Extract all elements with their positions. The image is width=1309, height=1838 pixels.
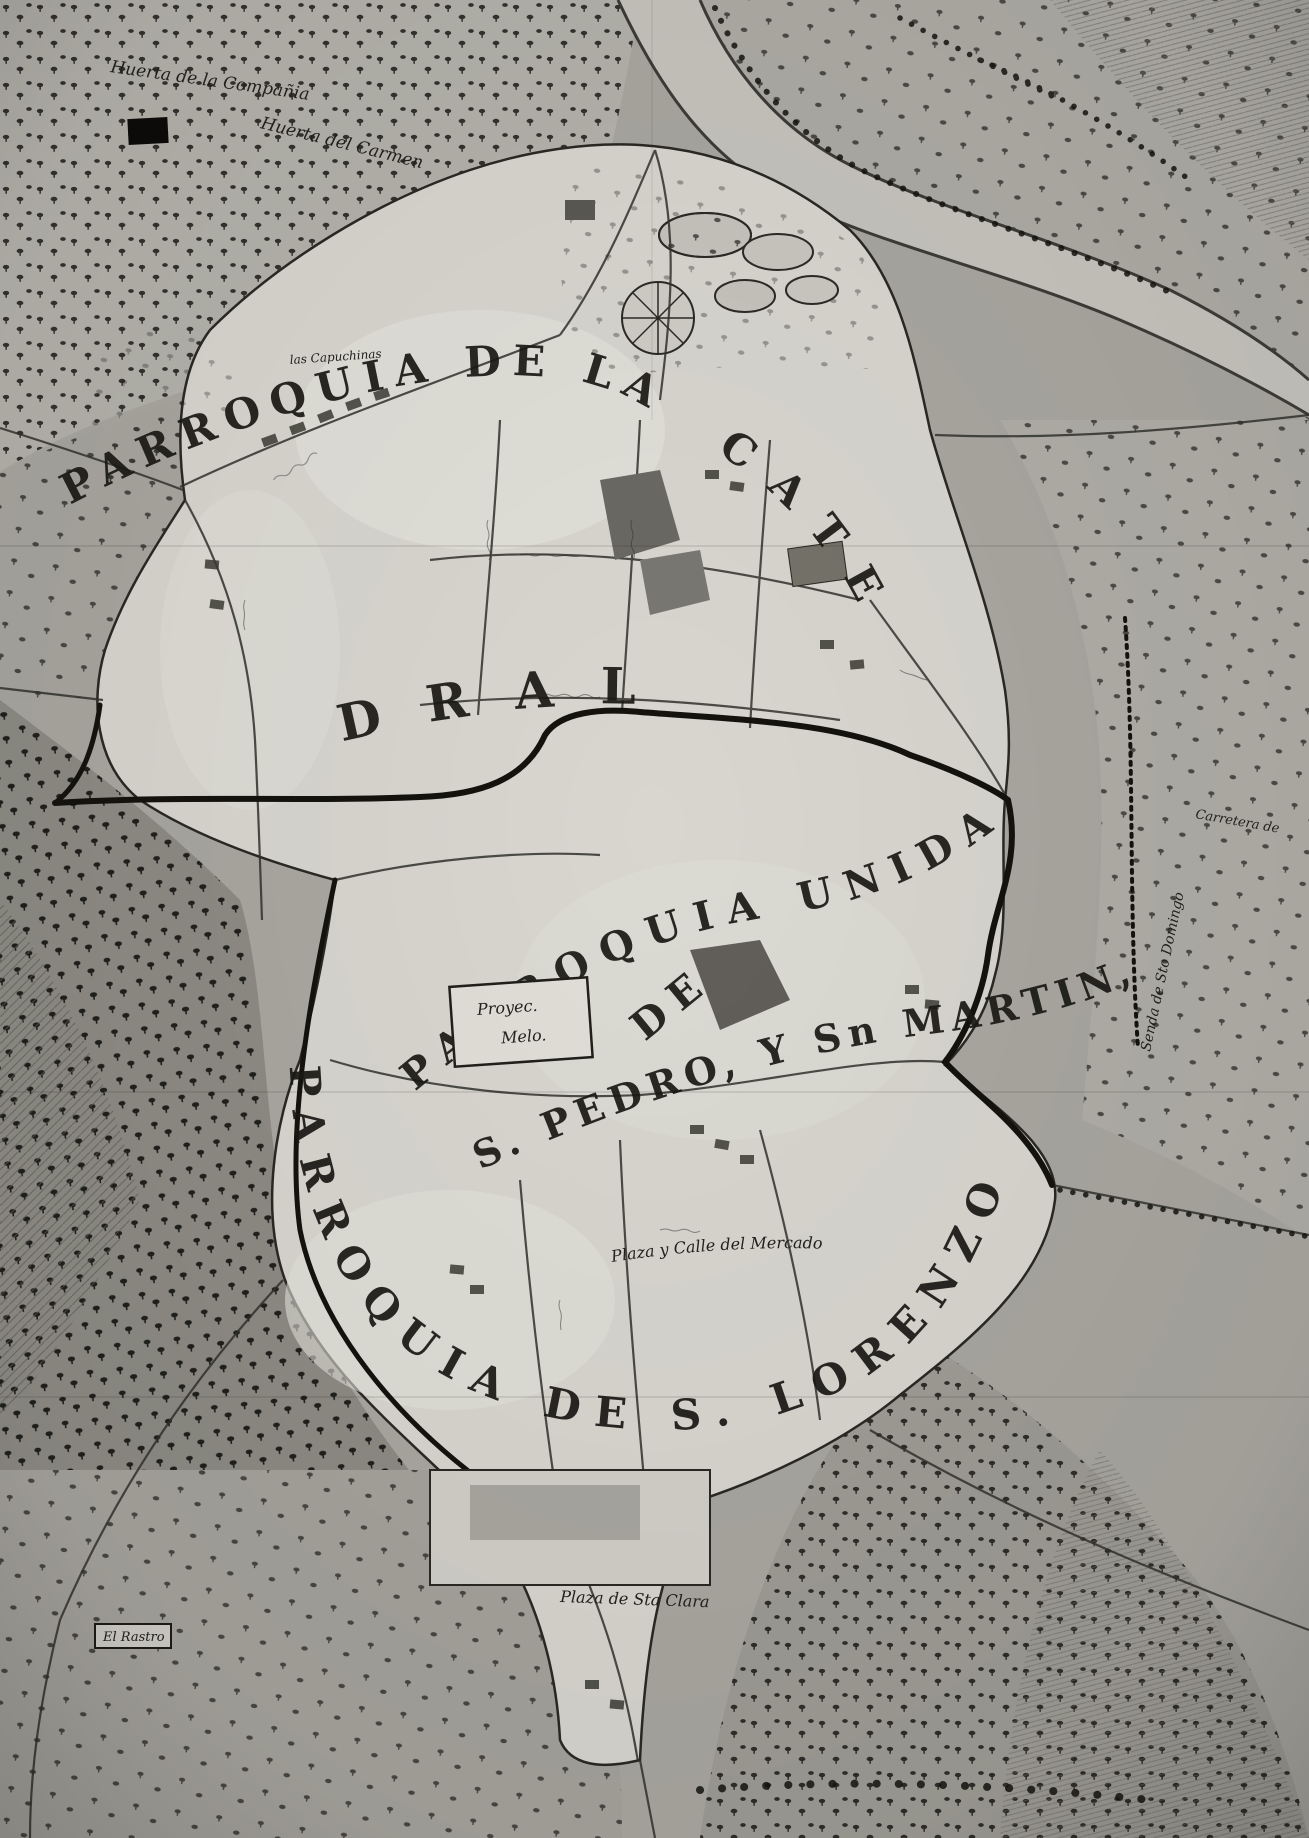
map-canvas: PARROQUIA DE LA CATE DRAL PARROQUIA UNID… (0, 0, 1309, 1838)
historical-city-map: PARROQUIA DE LA CATE DRAL PARROQUIA UNID… (0, 0, 1309, 1838)
vignette (0, 0, 1309, 1838)
